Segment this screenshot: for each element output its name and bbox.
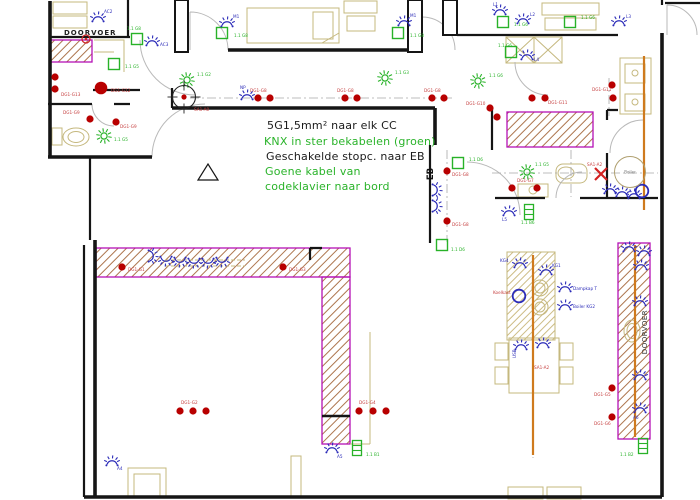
socket-symbol xyxy=(486,104,493,111)
room-label-eb: EB xyxy=(426,168,436,180)
fixture-label: AC2 xyxy=(104,9,113,14)
socket-symbol xyxy=(95,82,108,95)
light-label: 1.1 G3 xyxy=(395,70,409,75)
radiator-symbol: 1.1 B1 xyxy=(353,441,380,458)
socket-group: DG1-G12 xyxy=(95,82,131,95)
fixture-label: A6 xyxy=(633,415,639,420)
wall-fixture-symbol xyxy=(557,281,573,292)
socket-symbol xyxy=(428,94,435,101)
radiator-label: 1.1 B1 xyxy=(366,452,380,457)
radiator-symbol: 1.1 B2 xyxy=(620,439,648,458)
socket-group: DG1-G5 xyxy=(594,384,616,397)
fixture-label: KG4 xyxy=(500,258,509,263)
wall-fixture-symbol xyxy=(611,15,627,26)
cross-label: SA1-A2 xyxy=(587,162,603,167)
junction-label: SA1-A0 xyxy=(194,107,210,112)
radiator-symbol: 1.1 B6 xyxy=(521,205,535,226)
floor-plan-drawing: DOORVOER EB DOORVOER DG1-G13DG1-G12DG1-G… xyxy=(0,0,700,500)
socket-symbol xyxy=(528,94,535,101)
socket-group: DG1-G11 xyxy=(528,94,567,105)
ceiling-light-symbol: 1.1 G5 xyxy=(519,162,549,180)
socket-label: DG1-G8 xyxy=(250,88,267,93)
bath-hatch xyxy=(507,112,593,147)
socket-label: DG1-G8 xyxy=(452,172,469,177)
fixture-label: L4 xyxy=(534,57,539,62)
switch-label: 1.1 G8 xyxy=(410,33,424,38)
boiler-symbol: Boiler xyxy=(615,157,646,188)
fixture-label: A4 xyxy=(117,466,123,471)
socket-label: DG1-G9 xyxy=(120,124,137,129)
fixture-label: KG1 xyxy=(552,263,561,268)
cross-marker-symbol: SA1-A2 xyxy=(587,162,607,180)
wall-fixture-symbol xyxy=(501,205,517,216)
specials-layer: KoelkastSA1-A0SA1-A2BoilerSA1-A2 xyxy=(82,35,648,370)
wall-fixture-symbol xyxy=(144,35,160,46)
socket-group: DG1-G11 xyxy=(592,81,617,101)
ring-label: Koelkast xyxy=(493,290,511,295)
socket-label: DG1-G3 xyxy=(289,267,306,272)
wall-fixture-symbol xyxy=(614,186,630,197)
socket-symbol xyxy=(355,407,362,414)
socket-symbol xyxy=(112,118,119,125)
switch-label: 1.1 D6 xyxy=(451,247,465,252)
switch-symbol: 1.1 D6 xyxy=(437,240,466,253)
socket-group: DG1-G9 xyxy=(112,118,137,129)
wall-fixture-symbol xyxy=(513,339,529,350)
wall-fixture-symbol xyxy=(104,455,120,466)
socket-symbol xyxy=(440,94,447,101)
socket-symbol xyxy=(176,407,183,414)
socket-group: DG1-G13 xyxy=(51,73,80,97)
socket-symbol xyxy=(254,94,261,101)
switch-label: 1.1 D6 xyxy=(469,157,483,162)
ceiling-light-symbol: 1.1 G6 xyxy=(470,73,503,89)
socket-symbol xyxy=(86,115,93,122)
boiler-label: Boiler xyxy=(624,170,636,175)
socket-symbol xyxy=(202,407,209,414)
fixture-label: Boiler KG2 xyxy=(573,304,595,309)
socket-symbol xyxy=(493,113,500,120)
wall-fixture-symbol xyxy=(432,182,443,198)
wall-fixture-symbol xyxy=(432,198,443,214)
socket-label: DG1-G8 xyxy=(424,88,441,93)
socket-symbol xyxy=(118,263,125,270)
socket-group: DG1-G9 xyxy=(63,110,94,123)
socket-symbol xyxy=(266,94,273,101)
fixture-label: L1 xyxy=(493,2,498,7)
socket-symbol xyxy=(279,263,286,270)
socket-symbol xyxy=(369,407,376,414)
floor-plan-canvas[interactable]: DOORVOER EB DOORVOER DG1-G13DG1-G12DG1-G… xyxy=(0,0,700,500)
socket-symbol xyxy=(51,73,58,80)
annotation-line-3: Geschakelde stopc. naar EB xyxy=(266,151,425,163)
socket-symbol xyxy=(443,167,450,174)
socket-group: DG1-G2 xyxy=(176,400,209,415)
socket-symbol xyxy=(608,413,615,420)
fixture-label: L2 xyxy=(530,12,535,17)
socket-label: DG1-G11 xyxy=(592,87,612,92)
socket-label: DG1-G12 xyxy=(111,88,131,93)
north-triangle-symbol xyxy=(198,164,218,180)
ceiling-band-vertical xyxy=(322,277,350,444)
light-label: 1.1 G6 xyxy=(489,73,503,78)
light-label: 1.1 G5 xyxy=(535,162,549,167)
socket-group: DG1-G4 xyxy=(355,400,389,415)
wall-fixture-symbol xyxy=(557,299,573,310)
fixture-label: L5 xyxy=(502,217,507,222)
switch-label: 1.1 G5 xyxy=(125,64,139,69)
socket-symbol xyxy=(382,407,389,414)
socket-label: DG1-G9 xyxy=(63,110,80,115)
socket-label: DG1-G11 xyxy=(548,100,568,105)
socket-label: DG1-G2 xyxy=(181,400,198,405)
connection-ring-symbol xyxy=(636,185,649,198)
fixture-label: Dampkap T xyxy=(573,286,597,291)
ceiling-light-symbol: 1.1 G3 xyxy=(377,70,409,86)
socket-label: DG1-G4 xyxy=(359,400,376,405)
socket-symbol xyxy=(189,407,196,414)
socket-label: DG1-G1 xyxy=(128,267,145,272)
socket-symbol xyxy=(609,94,616,101)
room-label-doorvoer-top: DOORVOER xyxy=(64,29,117,37)
wall-fixture-symbol xyxy=(602,183,618,194)
fixture-label: L3 xyxy=(626,14,631,19)
switch-symbol: 1.1 G6 xyxy=(565,15,596,28)
light-label: 1.1 G5 xyxy=(114,137,128,142)
annotation-line-1: 5G1,5mm² naar elk CC xyxy=(267,120,397,132)
switch-label: 1.1 G6 xyxy=(498,43,512,48)
fixture-label: A5 xyxy=(337,454,343,459)
switch-label: 1.1 G8 xyxy=(127,26,141,31)
socket-label: DG1-G5 xyxy=(594,392,611,397)
socket-symbol xyxy=(443,217,450,224)
annotation-line-2: KNX in ster bekabelen (groen) xyxy=(264,136,436,148)
socket-group: DG1-G8 xyxy=(337,88,361,102)
switch-label: 1.1 G6 xyxy=(581,15,595,20)
socket-label: DG1-G8 xyxy=(337,88,354,93)
socket-symbol xyxy=(353,94,360,101)
radiators-layer: 1.1 B61.1 B11.1 B2 xyxy=(353,205,648,458)
socket-label: DG1-G6 xyxy=(594,421,611,426)
annotation-line-4: Goene kabel van xyxy=(265,166,361,178)
room-label-doorvoer-right: DOORVOER xyxy=(641,310,649,354)
socket-label: DG1-G13 xyxy=(61,92,81,97)
fixture-label: M1 xyxy=(233,14,240,19)
socket-group: DG1-G7 xyxy=(508,178,540,192)
socket-group: DG1-G8 xyxy=(424,88,448,102)
socket-group: DG1-G10 xyxy=(466,101,501,121)
radiator-label: 1.1 B2 xyxy=(620,452,634,457)
light-label: 1.1 G2 xyxy=(197,72,211,77)
socket-symbol xyxy=(533,184,540,191)
fixture-label: NP xyxy=(240,85,246,90)
ceiling-light-symbol: 1.1 G5 xyxy=(96,128,128,143)
radiator-label: 1.1 B6 xyxy=(521,220,535,225)
switch-label: 1.1 G8 xyxy=(234,33,248,38)
socket-label: DG1-G10 xyxy=(466,101,486,106)
table-ref-label: SA1-A2 xyxy=(534,365,550,370)
fixture-label: USB xyxy=(512,349,517,358)
annotation-line-5: codeklavier naar bord xyxy=(265,181,390,193)
socket-group: DG1-G6 xyxy=(594,413,616,426)
fixture-label: M1 xyxy=(410,13,417,18)
switch-label: 1.1 G6 xyxy=(514,22,528,27)
socket-symbol xyxy=(608,384,615,391)
socket-label: DG1-G7 xyxy=(517,178,534,183)
socket-symbol xyxy=(341,94,348,101)
socket-symbol xyxy=(51,85,58,92)
socket-label: DG1-G8 xyxy=(452,222,469,227)
fixture-label: AC3 xyxy=(160,42,169,47)
socket-symbol xyxy=(508,184,515,191)
